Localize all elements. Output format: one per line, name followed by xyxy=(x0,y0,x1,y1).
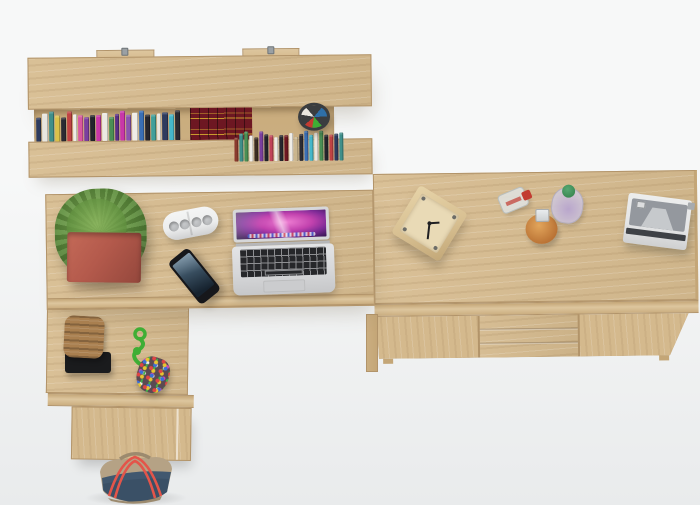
viewfinder-icon xyxy=(636,201,646,209)
book-spine xyxy=(254,137,258,161)
scene xyxy=(0,0,700,505)
shelf-ledge xyxy=(28,138,372,178)
book-spine xyxy=(157,113,161,140)
sideboard-foot-left xyxy=(383,359,393,364)
drawer-divider xyxy=(480,327,578,330)
book-spine xyxy=(139,111,144,141)
pen-cup xyxy=(298,103,330,131)
book-spine xyxy=(324,135,328,161)
sideboard-drawer-stack xyxy=(480,314,579,357)
wall-hook-icon xyxy=(267,46,274,54)
retro-camera xyxy=(623,193,693,251)
book-spine xyxy=(120,111,125,141)
book-spine xyxy=(132,113,138,141)
book-spine xyxy=(279,135,283,161)
book-spine xyxy=(102,113,108,141)
book-spine xyxy=(234,138,238,162)
book-spine xyxy=(61,117,66,141)
screw-icon xyxy=(402,227,407,232)
sideboard-door-left xyxy=(377,316,479,359)
books-row-top xyxy=(36,108,188,142)
laptop-dock xyxy=(247,232,315,238)
laptop-spacebar xyxy=(265,269,303,275)
book-spine xyxy=(115,114,119,141)
toy-group xyxy=(124,326,180,396)
camera-front xyxy=(629,198,688,232)
book-spine xyxy=(284,135,288,161)
desk-top xyxy=(45,190,375,311)
books-row-bottom xyxy=(234,127,360,161)
book-spine xyxy=(274,137,278,161)
book-spine xyxy=(169,114,174,140)
book-spine xyxy=(96,115,101,141)
book-spine xyxy=(329,135,333,161)
book-spine xyxy=(78,115,83,141)
plant-pot-red xyxy=(67,232,142,283)
screw-icon xyxy=(433,245,438,250)
speaker-hole-icon xyxy=(190,216,202,228)
book-spine xyxy=(36,118,41,142)
book-spine xyxy=(42,114,48,142)
desk-leg xyxy=(366,314,378,372)
book-spine xyxy=(309,135,313,161)
book-spine xyxy=(319,131,323,161)
book-spine xyxy=(67,111,72,141)
denim-tote-bag-graphic xyxy=(90,446,182,505)
wall-shelf xyxy=(27,46,372,180)
book-spine xyxy=(269,135,273,161)
drawer-divider xyxy=(480,341,578,344)
camera-knob xyxy=(687,202,695,210)
book-spine xyxy=(90,115,95,141)
book-spine xyxy=(249,135,253,161)
book-spine xyxy=(304,131,308,161)
laptop-trackpad xyxy=(263,279,305,292)
sideboard-front xyxy=(377,313,697,359)
laptop-keyboard xyxy=(240,246,327,277)
basket-group xyxy=(62,316,116,376)
book-spine xyxy=(314,133,318,161)
sideboard xyxy=(373,168,699,364)
book-spine xyxy=(289,133,293,161)
book-spine xyxy=(73,114,77,141)
sideboard-door-right xyxy=(580,313,698,356)
book-spine xyxy=(299,134,303,161)
laptop xyxy=(231,204,336,296)
sideboard-foot-right xyxy=(659,355,669,360)
screw-icon xyxy=(451,215,456,220)
book-spine xyxy=(239,134,243,162)
book-spine xyxy=(264,134,268,161)
book-spine xyxy=(109,117,114,141)
shelf-top-panel xyxy=(27,54,372,110)
smartphone-screen xyxy=(172,252,215,298)
screw-icon xyxy=(421,196,426,201)
book-spine xyxy=(175,110,180,140)
book-spine xyxy=(55,115,60,141)
book-spine xyxy=(151,114,156,140)
speaker-hole-icon xyxy=(202,214,214,226)
book-spine xyxy=(126,115,131,141)
book-spine xyxy=(339,133,343,161)
laptop-wallpaper xyxy=(236,209,327,239)
wall-hook-icon xyxy=(121,48,128,56)
book-spine xyxy=(84,117,89,141)
laptop-screen xyxy=(233,206,330,242)
book-spine xyxy=(49,112,54,142)
book-spine xyxy=(244,131,248,161)
book-spine xyxy=(334,134,338,161)
laptop-body xyxy=(232,243,336,296)
book-spine xyxy=(259,131,263,161)
book-spine xyxy=(162,112,168,140)
speaker-hole-icon xyxy=(168,221,180,233)
denim-tote-bag xyxy=(90,446,182,505)
book-spine xyxy=(294,137,298,161)
portable-speaker xyxy=(160,204,220,242)
woven-basket xyxy=(63,315,105,359)
book-spine xyxy=(145,115,150,141)
